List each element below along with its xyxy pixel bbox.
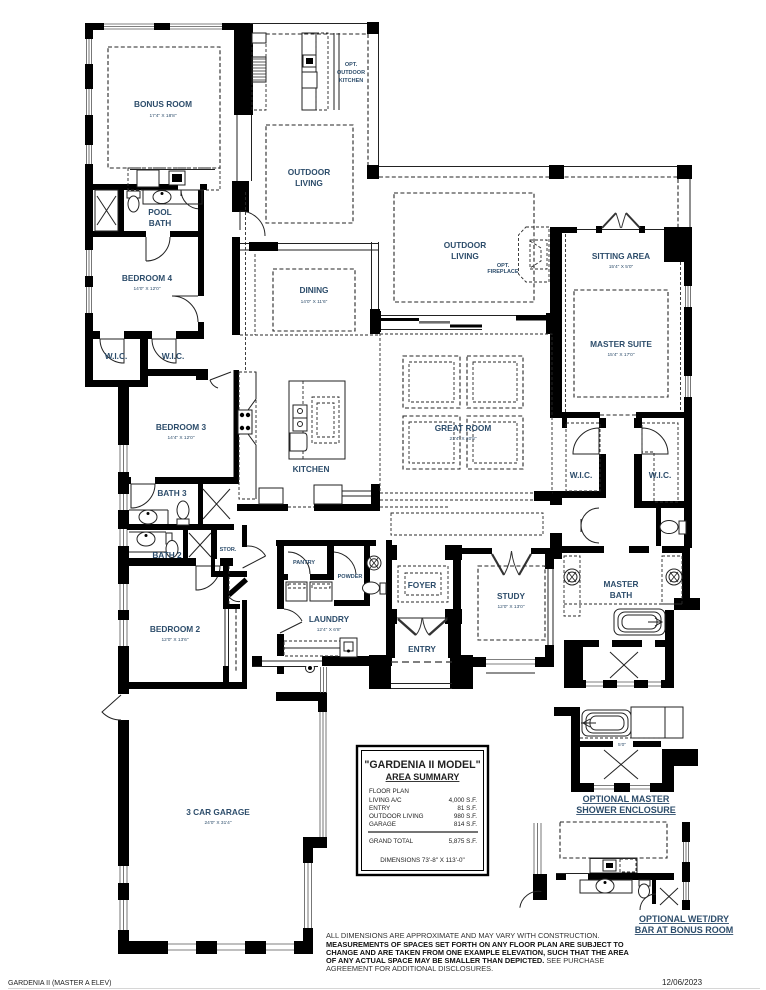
svg-text:W.I.C.: W.I.C. xyxy=(105,351,128,361)
svg-text:LIVING: LIVING xyxy=(295,178,323,188)
svg-text:12/06/2023: 12/06/2023 xyxy=(662,978,703,987)
svg-text:LIVING: LIVING xyxy=(451,251,479,261)
svg-text:POWDER: POWDER xyxy=(338,574,363,580)
svg-text:14'4" X 12'0": 14'4" X 12'0" xyxy=(167,435,194,441)
svg-text:14'0" X 11'6": 14'0" X 11'6" xyxy=(301,299,328,305)
svg-text:FLOOR PLAN: FLOOR PLAN xyxy=(369,788,409,795)
svg-text:SHOWER ENCLOSURE: SHOWER ENCLOSURE xyxy=(576,805,676,815)
svg-text:OPTIONAL MASTER: OPTIONAL MASTER xyxy=(583,794,670,804)
svg-text:GARDENIA II (MASTER A ELEV): GARDENIA II (MASTER A ELEV) xyxy=(8,980,111,987)
svg-text:MASTER SUITE: MASTER SUITE xyxy=(590,339,652,349)
svg-text:GREAT ROOM: GREAT ROOM xyxy=(435,423,492,433)
svg-text:14'0" X 12'0": 14'0" X 12'0" xyxy=(133,286,160,292)
svg-text:814 S.F.: 814 S.F. xyxy=(454,821,477,828)
svg-text:W.I.C.: W.I.C. xyxy=(649,470,672,480)
svg-text:3 CAR GARAGE: 3 CAR GARAGE xyxy=(186,807,250,817)
svg-text:980 S.F.: 980 S.F. xyxy=(454,813,477,820)
svg-text:BEDROOM 4: BEDROOM 4 xyxy=(122,273,173,283)
svg-text:BEDROOM 2: BEDROOM 2 xyxy=(150,624,201,634)
svg-text:DINING: DINING xyxy=(299,285,328,295)
svg-text:FOYER: FOYER xyxy=(408,580,437,590)
svg-text:AGREEMENT FOR ADDITIONAL DISCL: AGREEMENT FOR ADDITIONAL DISCLOSURES. xyxy=(326,964,493,973)
svg-text:17'4" X 18'8": 17'4" X 18'8" xyxy=(149,113,176,119)
svg-text:15'4" X 17'0": 15'4" X 17'0" xyxy=(607,352,634,358)
svg-text:ENTRY: ENTRY xyxy=(369,805,391,812)
svg-text:W.I.C.: W.I.C. xyxy=(162,351,185,361)
svg-text:"GARDENIA II MODEL": "GARDENIA II MODEL" xyxy=(364,759,480,771)
svg-text:GRAND TOTAL: GRAND TOTAL xyxy=(369,838,414,845)
svg-text:BEDROOM 3: BEDROOM 3 xyxy=(156,422,207,432)
svg-text:POOL: POOL xyxy=(148,207,172,217)
svg-text:OUTDOOR: OUTDOOR xyxy=(288,167,330,177)
svg-text:LIVING A/C: LIVING A/C xyxy=(369,797,402,804)
svg-text:BONUS ROOM: BONUS ROOM xyxy=(134,99,192,109)
svg-text:4,000 S.F.: 4,000 S.F. xyxy=(449,797,478,804)
svg-text:BATH 3: BATH 3 xyxy=(157,488,187,498)
svg-text:BAR AT BONUS ROOM: BAR AT BONUS ROOM xyxy=(635,925,734,935)
svg-text:OPTIONAL WET/DRY: OPTIONAL WET/DRY xyxy=(639,914,729,924)
svg-text:KITCHEN: KITCHEN xyxy=(339,78,363,84)
svg-text:12'4" X 6'8": 12'4" X 6'8" xyxy=(317,627,342,633)
svg-text:5,875 S.F.: 5,875 S.F. xyxy=(449,838,478,845)
svg-text:PANTRY: PANTRY xyxy=(293,560,315,566)
svg-text:24'0" X 31'4": 24'0" X 31'4" xyxy=(204,820,231,826)
svg-text:ENTRY: ENTRY xyxy=(408,644,436,654)
svg-text:LAUNDRY: LAUNDRY xyxy=(309,614,350,624)
svg-text:5'0": 5'0" xyxy=(618,742,626,748)
svg-text:ALL DIMENSIONS ARE APPROXIMATE: ALL DIMENSIONS ARE APPROXIMATE AND MAY V… xyxy=(326,931,600,940)
svg-text:21'4" X 20'8": 21'4" X 20'8" xyxy=(449,436,476,442)
svg-text:MASTER: MASTER xyxy=(603,579,638,589)
svg-text:AREA SUMMARY: AREA SUMMARY xyxy=(386,772,460,782)
svg-text:15'4" X 5'0": 15'4" X 5'0" xyxy=(609,264,634,270)
svg-text:GARAGE: GARAGE xyxy=(369,821,396,828)
svg-text:W.I.C.: W.I.C. xyxy=(570,470,593,480)
svg-text:81 S.F.: 81 S.F. xyxy=(457,805,477,812)
svg-text:FIREPLACE: FIREPLACE xyxy=(487,269,519,275)
svg-text:BATH 2: BATH 2 xyxy=(152,550,182,560)
svg-text:SITTING AREA: SITTING AREA xyxy=(592,251,650,261)
svg-text:BATH: BATH xyxy=(610,590,632,600)
svg-text:KITCHEN: KITCHEN xyxy=(293,464,330,474)
svg-text:DIMENSIONS 73'-8" X 113'-0": DIMENSIONS 73'-8" X 113'-0" xyxy=(380,857,464,864)
svg-text:OUTDOOR LIVING: OUTDOOR LIVING xyxy=(369,813,424,820)
svg-text:STUDY: STUDY xyxy=(497,591,526,601)
svg-text:12'0" X 13'0": 12'0" X 13'0" xyxy=(497,604,524,610)
svg-text:OPT.: OPT. xyxy=(345,62,358,68)
svg-text:STOR.: STOR. xyxy=(220,547,237,553)
svg-text:OUTDOOR: OUTDOOR xyxy=(444,240,486,250)
svg-text:BATH: BATH xyxy=(149,218,171,228)
svg-text:12'0" X 13'6": 12'0" X 13'6" xyxy=(161,637,188,643)
svg-text:OUTDOOR: OUTDOOR xyxy=(337,70,365,76)
